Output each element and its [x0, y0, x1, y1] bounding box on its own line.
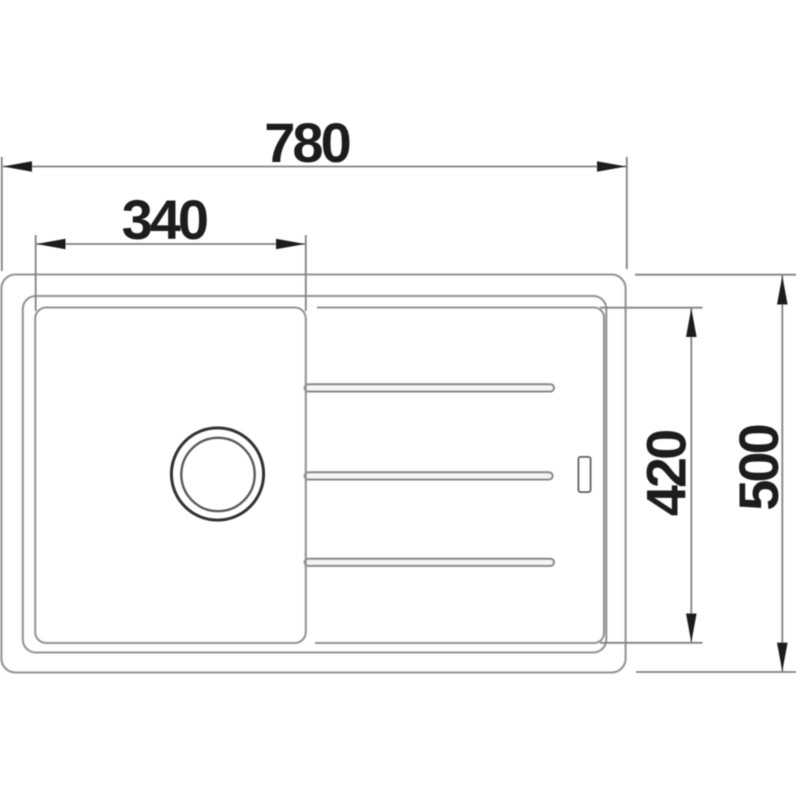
svg-text:340: 340 [122, 188, 207, 251]
svg-text:500: 500 [727, 425, 790, 510]
svg-text:780: 780 [264, 111, 349, 174]
svg-text:420: 420 [635, 431, 698, 516]
